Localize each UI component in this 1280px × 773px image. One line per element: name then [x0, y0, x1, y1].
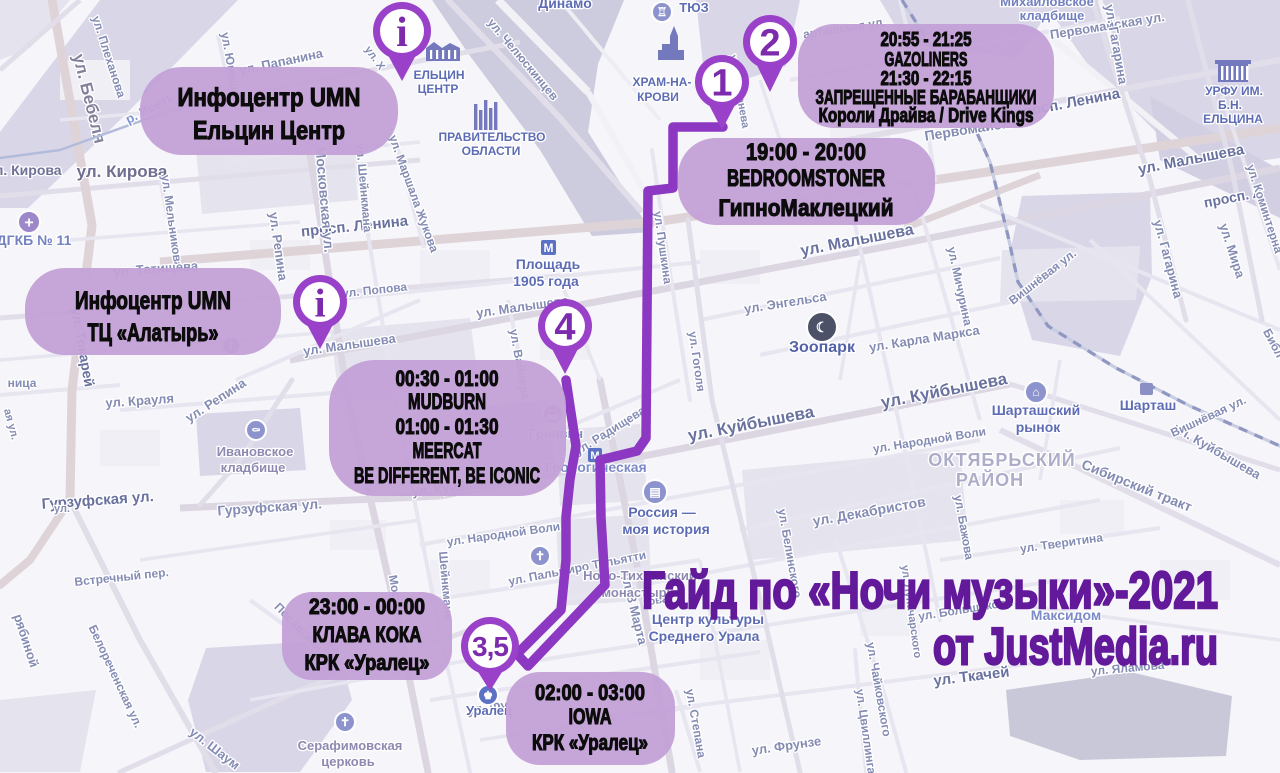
svg-text:♚: ♚ — [483, 690, 493, 702]
svg-text:ТЦ «Алатырь»: ТЦ «Алатырь» — [88, 319, 219, 347]
svg-text:Гайд по «Ночи музыки»-2021: Гайд по «Ночи музыки»-2021 — [642, 562, 1218, 620]
svg-text:Инфоцентр UMN: Инфоцентр UMN — [178, 82, 361, 112]
svg-text:3,5: 3,5 — [472, 631, 508, 662]
svg-text:1905 года: 1905 года — [513, 273, 579, 289]
svg-text:Шарташ: Шарташ — [1120, 397, 1177, 413]
svg-text:MEERCAT: MEERCAT — [413, 438, 482, 463]
svg-text:КРК «Уралец»: КРК «Уралец» — [305, 650, 430, 675]
svg-text:MUDBURN: MUDBURN — [408, 389, 486, 414]
svg-text:Шарташский: Шарташский — [992, 402, 1081, 418]
svg-text:23:00 - 00:00: 23:00 - 00:00 — [309, 594, 425, 619]
svg-text:кладбище: кладбище — [221, 460, 286, 475]
svg-text:ница: ница — [8, 376, 37, 390]
svg-text:ул.: ул. — [54, 503, 70, 515]
svg-text:КЛАВА КОКА: КЛАВА КОКА — [313, 622, 422, 647]
svg-text:00:30 - 01:00: 00:30 - 01:00 — [396, 366, 499, 391]
svg-text:♖: ♖ — [657, 5, 668, 19]
svg-text:Ельцин Центр: Ельцин Центр — [193, 115, 345, 145]
svg-text:кладбище: кладбище — [1020, 8, 1085, 23]
svg-text:ул. Кирова: ул. Кирова — [77, 162, 168, 181]
svg-text:УРФУ ИМ.: УРФУ ИМ. — [1205, 84, 1263, 98]
svg-text:ХРАМ-НА-: ХРАМ-НА- — [633, 75, 692, 89]
svg-text:BE DIFFERENT, BE ICONIC: BE DIFFERENT, BE ICONIC — [354, 463, 540, 488]
svg-text:ДГКБ № 11: ДГКБ № 11 — [0, 232, 72, 248]
svg-text:Россия —: Россия — — [628, 504, 696, 520]
svg-text:19:00 - 20:00: 19:00 - 20:00 — [746, 139, 866, 166]
svg-text:РАЙОН: РАЙОН — [956, 469, 1024, 490]
svg-text:Ивановское: Ивановское — [217, 444, 294, 459]
svg-text:Б.Н.: Б.Н. — [1218, 98, 1242, 112]
svg-text:Инфоцентр UMN: Инфоцентр UMN — [75, 287, 231, 315]
svg-text:л. Кирова: л. Кирова — [0, 162, 62, 178]
svg-text:M: M — [544, 241, 554, 255]
svg-text:+: + — [24, 215, 33, 232]
svg-text:⌂: ⌂ — [1032, 385, 1039, 399]
svg-text:⚰: ⚰ — [251, 425, 260, 437]
svg-text:рынок: рынок — [1016, 419, 1062, 435]
svg-text:Зоопарк: Зоопарк — [789, 339, 856, 356]
svg-text:Динамо: Динамо — [538, 0, 592, 11]
svg-text:Среднего Урала: Среднего Урала — [649, 628, 760, 644]
svg-text:КРОВИ: КРОВИ — [637, 90, 679, 104]
svg-text:ПРАВИТЕЛЬСТВО: ПРАВИТЕЛЬСТВО — [438, 130, 545, 144]
svg-text:ЦЕНТР: ЦЕНТР — [418, 82, 459, 96]
svg-text:☾: ☾ — [816, 319, 829, 335]
svg-text:20:55 - 21:25: 20:55 - 21:25 — [881, 29, 972, 51]
svg-text:от JustMedia.ru: от JustMedia.ru — [933, 618, 1218, 676]
svg-text:моя история: моя история — [622, 521, 710, 537]
svg-text:i: i — [396, 10, 408, 56]
svg-text:ЕЛЬЦИН: ЕЛЬЦИН — [413, 68, 464, 82]
svg-text:Серафимовская: Серафимовская — [298, 738, 403, 753]
svg-text:ОБЛАСТИ: ОБЛАСТИ — [462, 144, 521, 158]
svg-text:✝: ✝ — [340, 715, 350, 729]
svg-text:церковь: церковь — [321, 754, 374, 769]
svg-text:4: 4 — [554, 307, 575, 349]
svg-text:Уралец: Уралец — [466, 703, 512, 718]
svg-text:ОКТЯБРЬСКИЙ: ОКТЯБРЬСКИЙ — [928, 449, 1075, 470]
svg-text:01:00 - 01:30: 01:00 - 01:30 — [396, 414, 499, 439]
svg-text:BEDROOMSTONER: BEDROOMSTONER — [727, 165, 885, 192]
svg-text:2: 2 — [759, 23, 780, 65]
svg-text:IOWA: IOWA — [569, 704, 612, 729]
svg-text:ТЮЗ: ТЮЗ — [679, 0, 709, 15]
svg-text:ГипноМаклецкий: ГипноМаклецкий — [719, 195, 894, 222]
svg-text:1: 1 — [711, 63, 732, 105]
svg-text:✝: ✝ — [535, 549, 545, 563]
svg-text:ЕЛЬЦИНА: ЕЛЬЦИНА — [1203, 112, 1263, 126]
svg-text:▤: ▤ — [649, 485, 660, 499]
svg-text:КРК «Уралец»: КРК «Уралец» — [532, 730, 648, 755]
svg-text:02:00 - 03:00: 02:00 - 03:00 — [535, 680, 645, 705]
svg-text:i: i — [314, 280, 325, 325]
svg-text:Площадь: Площадь — [516, 256, 581, 272]
svg-text:Короли Драйва / Drive Kings: Короли Драйва / Drive Kings — [819, 105, 1034, 127]
